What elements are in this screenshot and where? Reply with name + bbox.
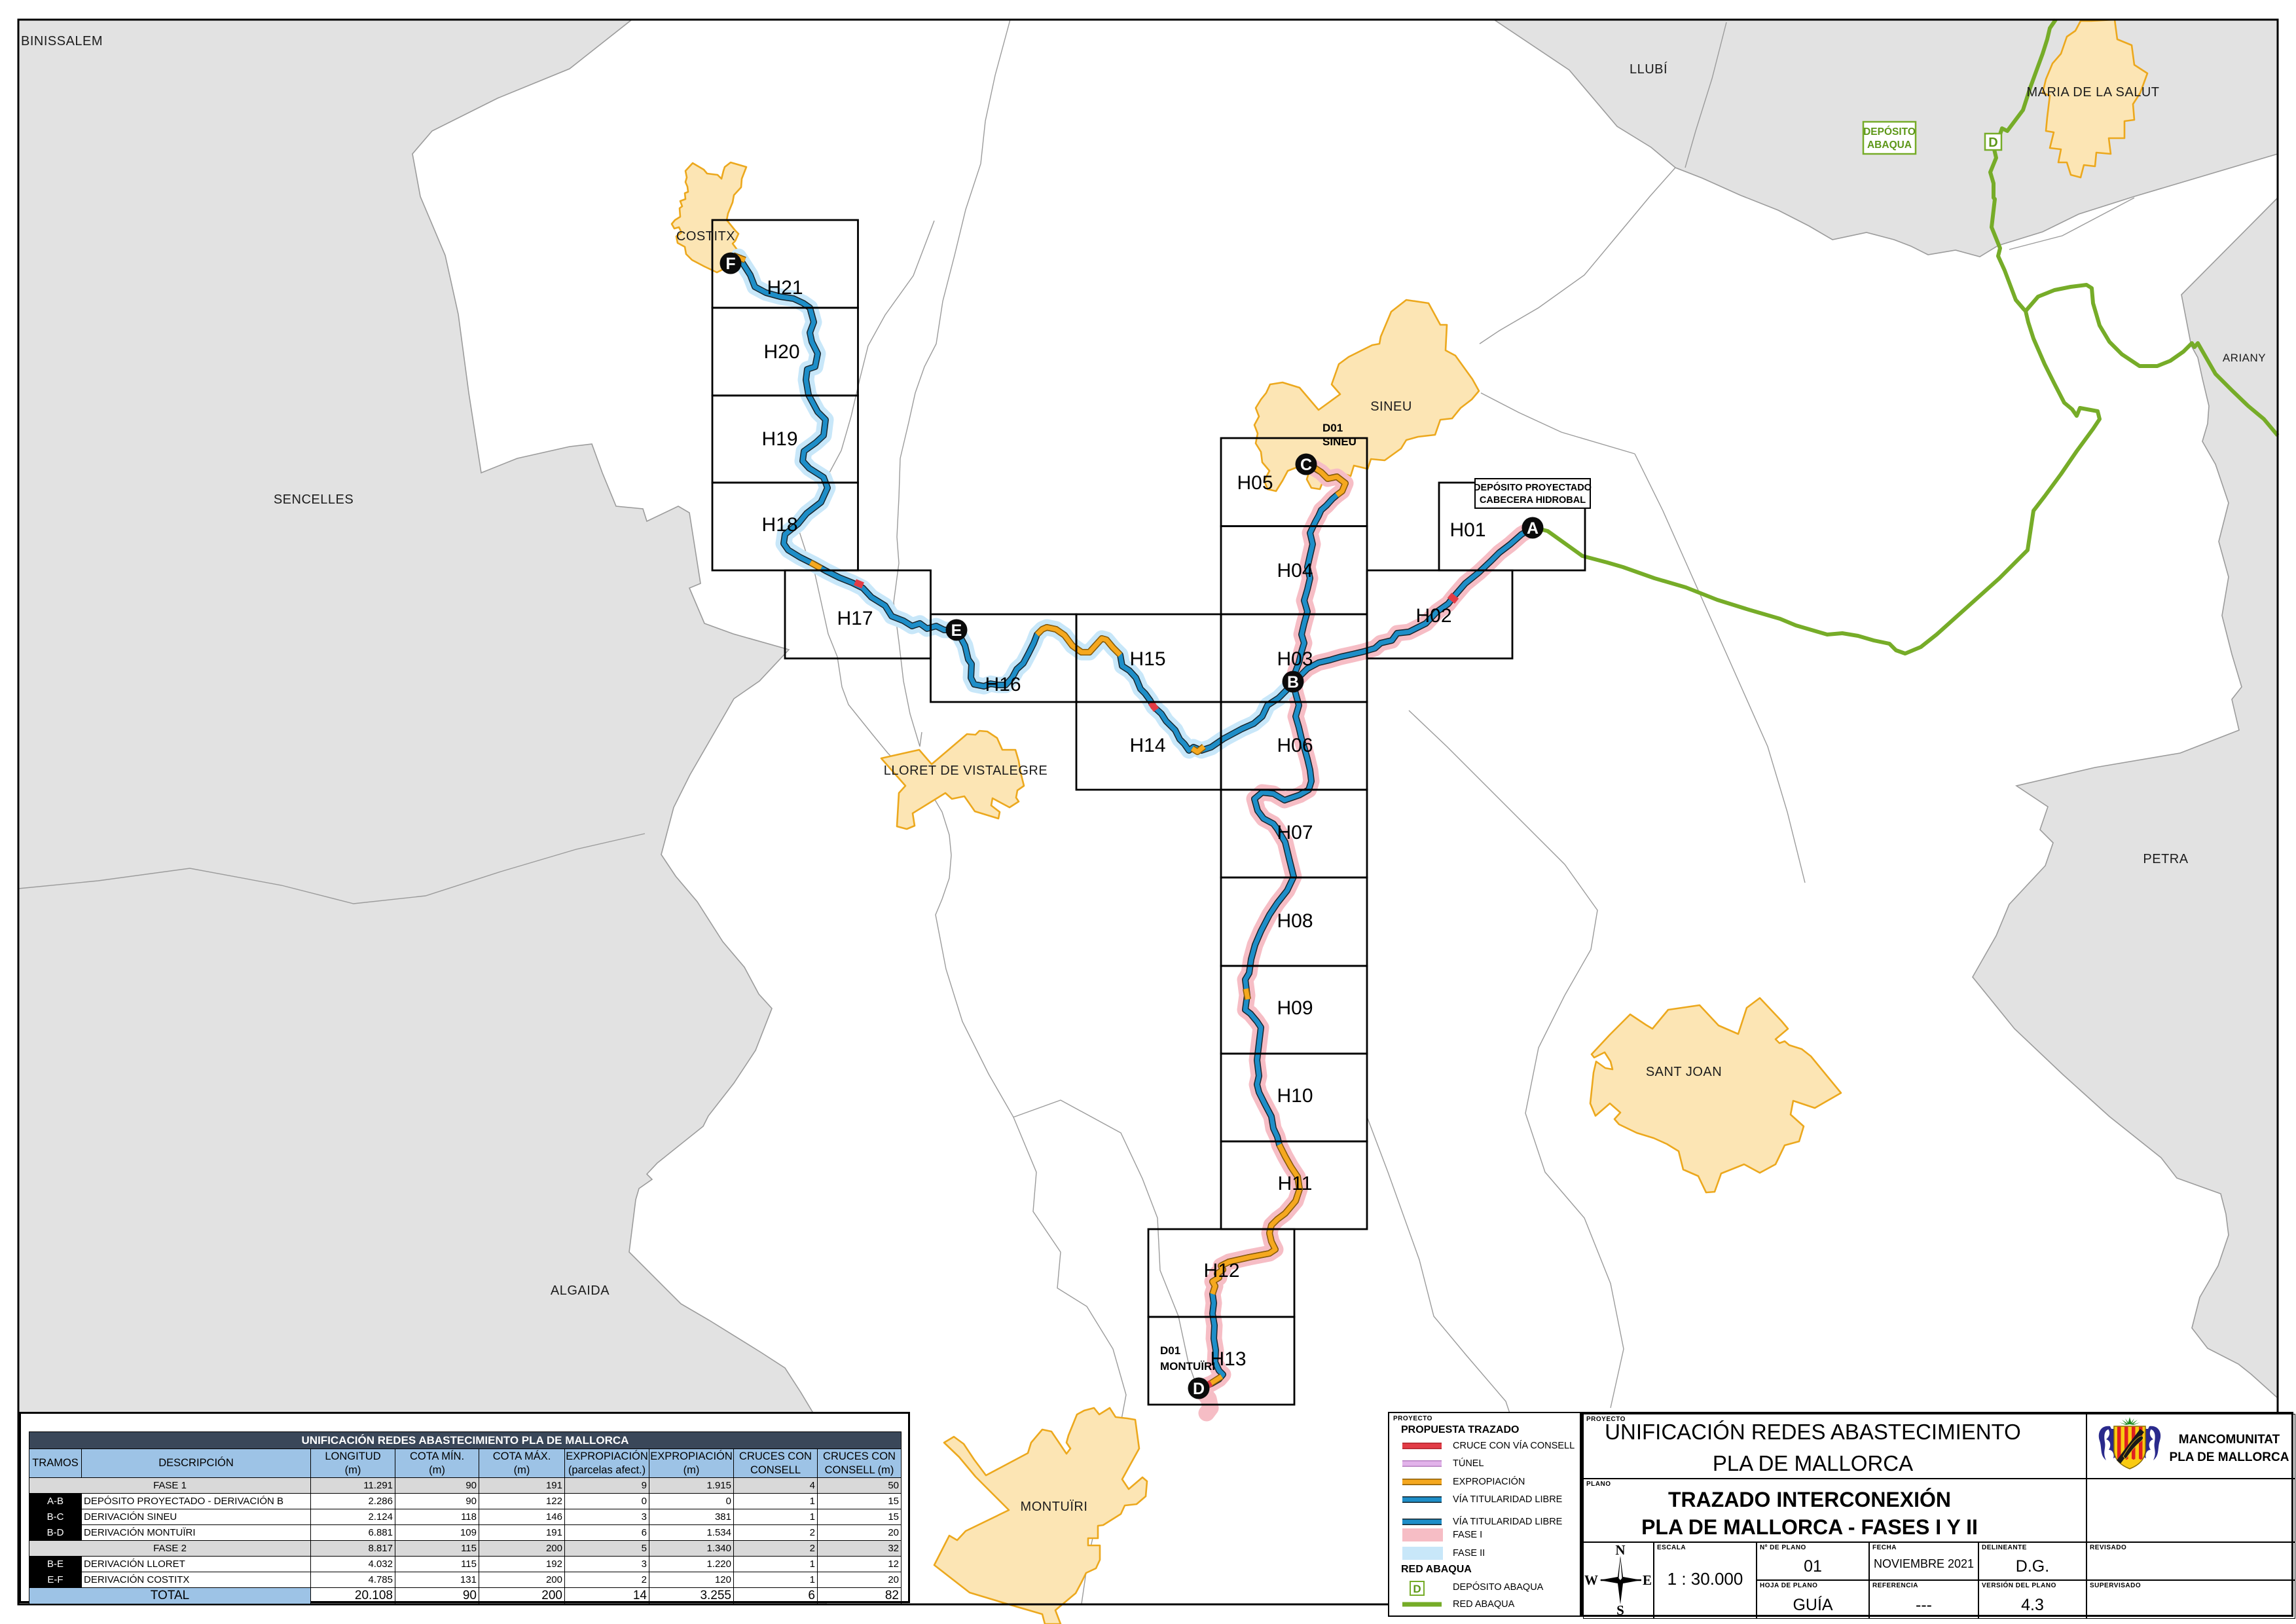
svg-text:COSTITX: COSTITX — [676, 229, 735, 244]
svg-text:D: D — [1988, 136, 1997, 150]
svg-text:H13: H13 — [1210, 1348, 1246, 1370]
svg-text:BINISSALEM: BINISSALEM — [21, 34, 103, 48]
svg-text:H02: H02 — [1415, 605, 1451, 627]
svg-text:MONTUÏRI: MONTUÏRI — [1160, 1360, 1215, 1373]
svg-text:A: A — [1527, 519, 1539, 538]
svg-text:D: D — [1413, 1583, 1421, 1595]
svg-text:LLORET DE VISTALEGRE: LLORET DE VISTALEGRE — [884, 764, 1048, 778]
svg-text:ALGAIDA: ALGAIDA — [551, 1283, 610, 1298]
svg-text:B: B — [1287, 673, 1299, 692]
svg-text:SINEU: SINEU — [1370, 399, 1412, 414]
svg-text:H16: H16 — [985, 674, 1021, 695]
svg-text:DEPÓSITO PROYECTADO: DEPÓSITO PROYECTADO — [1474, 481, 1592, 493]
svg-text:SINEU: SINEU — [1322, 435, 1357, 448]
svg-text:H05: H05 — [1237, 472, 1273, 494]
svg-text:H08: H08 — [1277, 910, 1313, 932]
svg-text:H18: H18 — [761, 514, 797, 536]
svg-text:CABECERA HIDROBAL: CABECERA HIDROBAL — [1480, 495, 1586, 506]
svg-text:D01: D01 — [1160, 1344, 1180, 1357]
svg-text:C: C — [1300, 456, 1312, 474]
svg-text:H04: H04 — [1277, 560, 1313, 581]
svg-text:PETRA: PETRA — [2143, 852, 2188, 866]
svg-text:H09: H09 — [1277, 997, 1313, 1019]
svg-text:H17: H17 — [837, 608, 873, 629]
svg-text:SENCELLES: SENCELLES — [274, 492, 354, 507]
svg-text:S: S — [1616, 1602, 1624, 1617]
svg-text:W: W — [1584, 1572, 1598, 1588]
svg-text:E: E — [1643, 1572, 1652, 1588]
svg-text:DEPÓSITO: DEPÓSITO — [1863, 126, 1916, 138]
svg-text:F: F — [725, 255, 735, 273]
svg-text:H15: H15 — [1129, 648, 1165, 670]
svg-text:H14: H14 — [1129, 735, 1165, 756]
svg-text:D01: D01 — [1322, 422, 1343, 434]
svg-text:H20: H20 — [763, 341, 799, 363]
svg-text:ABAQUA: ABAQUA — [1867, 139, 1912, 151]
svg-text:H07: H07 — [1277, 822, 1313, 843]
svg-text:SANT JOAN: SANT JOAN — [1646, 1065, 1722, 1079]
svg-text:N: N — [1615, 1543, 1625, 1558]
svg-text:E: E — [951, 621, 962, 640]
svg-text:H01: H01 — [1449, 519, 1485, 541]
svg-text:H12: H12 — [1203, 1260, 1239, 1282]
svg-text:D: D — [1193, 1380, 1205, 1398]
svg-text:MONTUÏRI: MONTUÏRI — [1021, 1500, 1088, 1514]
svg-text:LLUBÍ: LLUBÍ — [1630, 62, 1667, 77]
svg-text:H10: H10 — [1277, 1085, 1313, 1107]
svg-text:H11: H11 — [1278, 1173, 1313, 1194]
svg-text:H21: H21 — [767, 277, 803, 299]
svg-text:MARIA DE LA SALUT: MARIA DE LA SALUT — [2026, 85, 2159, 100]
svg-text:H19: H19 — [761, 428, 797, 450]
svg-text:ARIANY: ARIANY — [2223, 352, 2266, 364]
svg-text:H06: H06 — [1277, 735, 1313, 756]
svg-text:H03: H03 — [1277, 648, 1313, 670]
